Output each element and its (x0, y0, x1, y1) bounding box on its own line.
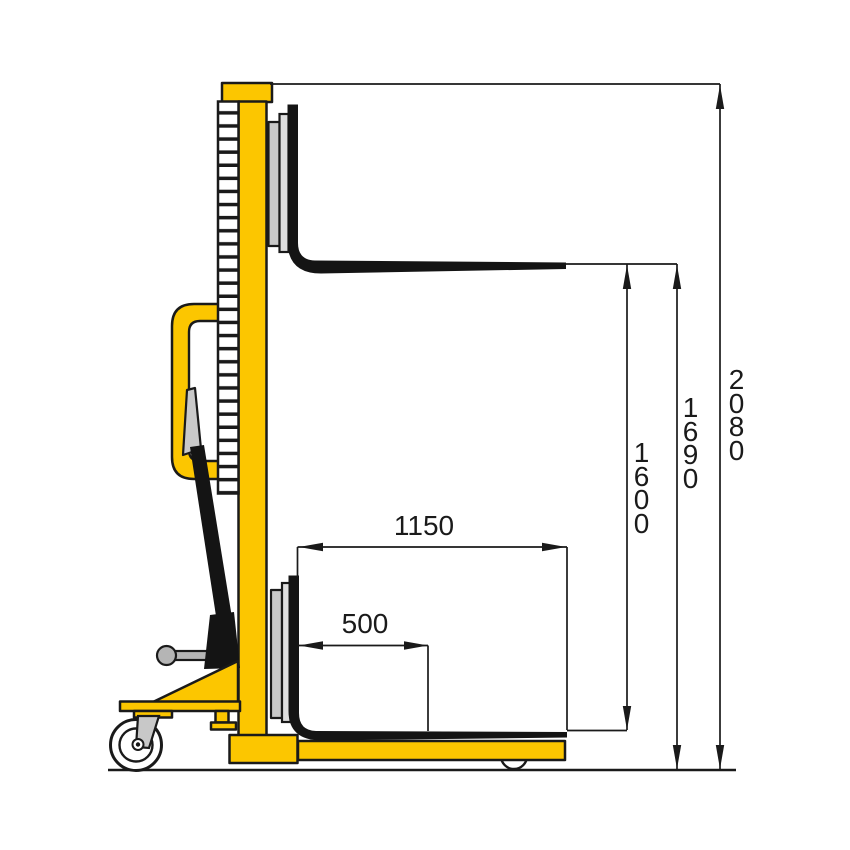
lift-chain (218, 102, 239, 494)
pump-handle-knob (157, 646, 176, 665)
dim-label-lift-stroke: 1600 (632, 441, 651, 535)
dim-label-overall-height: 2080 (727, 368, 746, 462)
base-leg (298, 741, 565, 760)
stacker-dimension-diagram: 1150 500 1600 1690 2080 (0, 0, 850, 850)
chassis-gusset (153, 661, 238, 702)
upper-carriage-plate (269, 122, 280, 246)
lower-carriage-plate (271, 590, 282, 718)
hydraulic-cylinder (204, 612, 240, 669)
dim-label-load-center: 500 (333, 612, 397, 636)
dim-label-max-fork-height: 1690 (681, 396, 700, 490)
mast-column (239, 102, 267, 737)
dimension-fork-length (298, 543, 568, 730)
dimension-max-fork-height (566, 264, 681, 770)
support-foot (211, 723, 236, 730)
support-strut (216, 711, 229, 723)
caster-axle-dot (136, 742, 140, 746)
fork-raised (288, 105, 567, 274)
dimension-load-center (298, 641, 429, 731)
upper-carriage-plate-2 (280, 114, 289, 252)
dimension-overall-height (270, 84, 724, 770)
diagram-canvas (0, 0, 850, 850)
dimension-lift-stroke (567, 264, 631, 731)
mast-cap (222, 83, 272, 102)
chassis-beam (120, 702, 240, 712)
dim-label-fork-length: 1150 (385, 514, 463, 538)
mast-base-block (230, 735, 298, 763)
